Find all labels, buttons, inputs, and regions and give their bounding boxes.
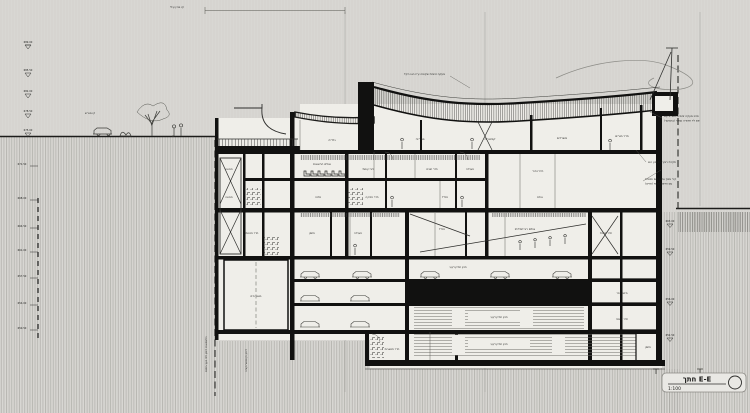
pile-note: כלונסאות דיפון לפי יועץ ביסוס — [204, 336, 208, 372]
room-label: חניון תת־קרקעי — [490, 343, 508, 346]
svg-text:654.00: 654.00 — [18, 301, 27, 305]
room-label: מבואה — [225, 196, 233, 199]
building-line-note: קו בניין עילי — [170, 5, 184, 9]
side-note: קיר מסך אלומיניום וזכוכית — [645, 177, 676, 181]
room-label: אולם הרצאות — [313, 162, 331, 166]
svg-text:685.50: 685.50 — [24, 68, 33, 72]
room-label: קפיטריה — [485, 137, 496, 141]
pile-note: דיפון וקונסטרוקציה — [244, 349, 248, 372]
room-label: סדנה — [315, 196, 321, 199]
room-label: חדר חשמל — [600, 232, 612, 235]
terrace-railing — [217, 139, 298, 146]
svg-text:689.00: 689.00 — [24, 40, 33, 44]
svg-text:652.50: 652.50 — [666, 333, 675, 337]
side-note: פרט מעקה זכוכית משולב עם — [664, 114, 699, 118]
svg-text:656.00: 656.00 — [666, 297, 675, 301]
svg-text:661.00: 661.00 — [18, 248, 27, 252]
room-label: חניון תת־קרקעי — [490, 316, 508, 319]
svg-text:668.00: 668.00 — [18, 196, 27, 200]
room-label: מיזוג אוויר — [616, 292, 627, 295]
svg-text:659.50: 659.50 — [666, 247, 675, 251]
room-label: אולם — [537, 196, 543, 199]
room-label: חדר משאבות — [385, 348, 400, 351]
side-note: פס לד תאורה נסתר (בהמשך) — [664, 119, 700, 123]
svg-text:682.00: 682.00 — [24, 89, 33, 93]
room-label: חדר אשפה — [616, 318, 629, 321]
room-label: אולם רב־תכליתי — [515, 227, 536, 231]
room-label: חדר חוגים — [426, 168, 437, 171]
room-label: מחסן — [309, 232, 315, 235]
svg-text:678.50: 678.50 — [24, 109, 33, 113]
side-note: עם הדפס קרמי (פריט) — [645, 182, 672, 186]
room-label: חדר מוזיקה — [366, 196, 379, 199]
roof-note: מעקה זכוכית שקופה ע"ג הגג הקל — [404, 72, 445, 76]
drawing-scale: 1:100 — [668, 386, 681, 392]
room-label: ממ"ד — [442, 195, 448, 199]
solid-poche — [407, 281, 588, 303]
room-label: חניון תת־קרקעי — [449, 266, 467, 269]
room-label: חדר מורים — [615, 134, 628, 138]
title-block: חתך E-E 1:100 — [662, 373, 746, 392]
svg-text:650.50: 650.50 — [18, 326, 27, 330]
svg-text:671.50: 671.50 — [18, 162, 27, 166]
room-label: מאגר מים — [251, 295, 262, 298]
section-title: חתך E-E — [683, 376, 712, 384]
room-label: מעבדה — [466, 168, 474, 171]
lot-line-note: קו מגרש — [85, 111, 95, 115]
room-label: ספרייה — [416, 137, 425, 141]
svg-text:675.00: 675.00 — [24, 128, 33, 132]
room-label: מעבדה — [354, 232, 362, 235]
room-label: ממ"ד — [439, 227, 445, 231]
side-note: תקרת רביץ בשיפוע הגג — [648, 160, 676, 164]
section-drawing: גלריה ספרייה קפיטריה משרדים חדר מורים מב… — [0, 0, 750, 413]
drawing-canvas[interactable]: גלריה ספרייה קפיטריה משרדים חדר מורים מב… — [0, 0, 750, 413]
svg-text:664.50: 664.50 — [18, 224, 27, 228]
room-label: חדר מכונות — [246, 232, 259, 235]
room-label: גלריה — [328, 138, 336, 142]
room-label: מבואה — [225, 168, 233, 171]
room-label: חלל כפול — [533, 170, 544, 173]
room-label: מחסן — [645, 346, 651, 349]
room-label: לובי קומתי — [362, 168, 374, 171]
svg-text:657.50: 657.50 — [18, 274, 27, 278]
svg-text:663.00: 663.00 — [666, 219, 675, 223]
room-label: משרדים — [557, 136, 567, 140]
